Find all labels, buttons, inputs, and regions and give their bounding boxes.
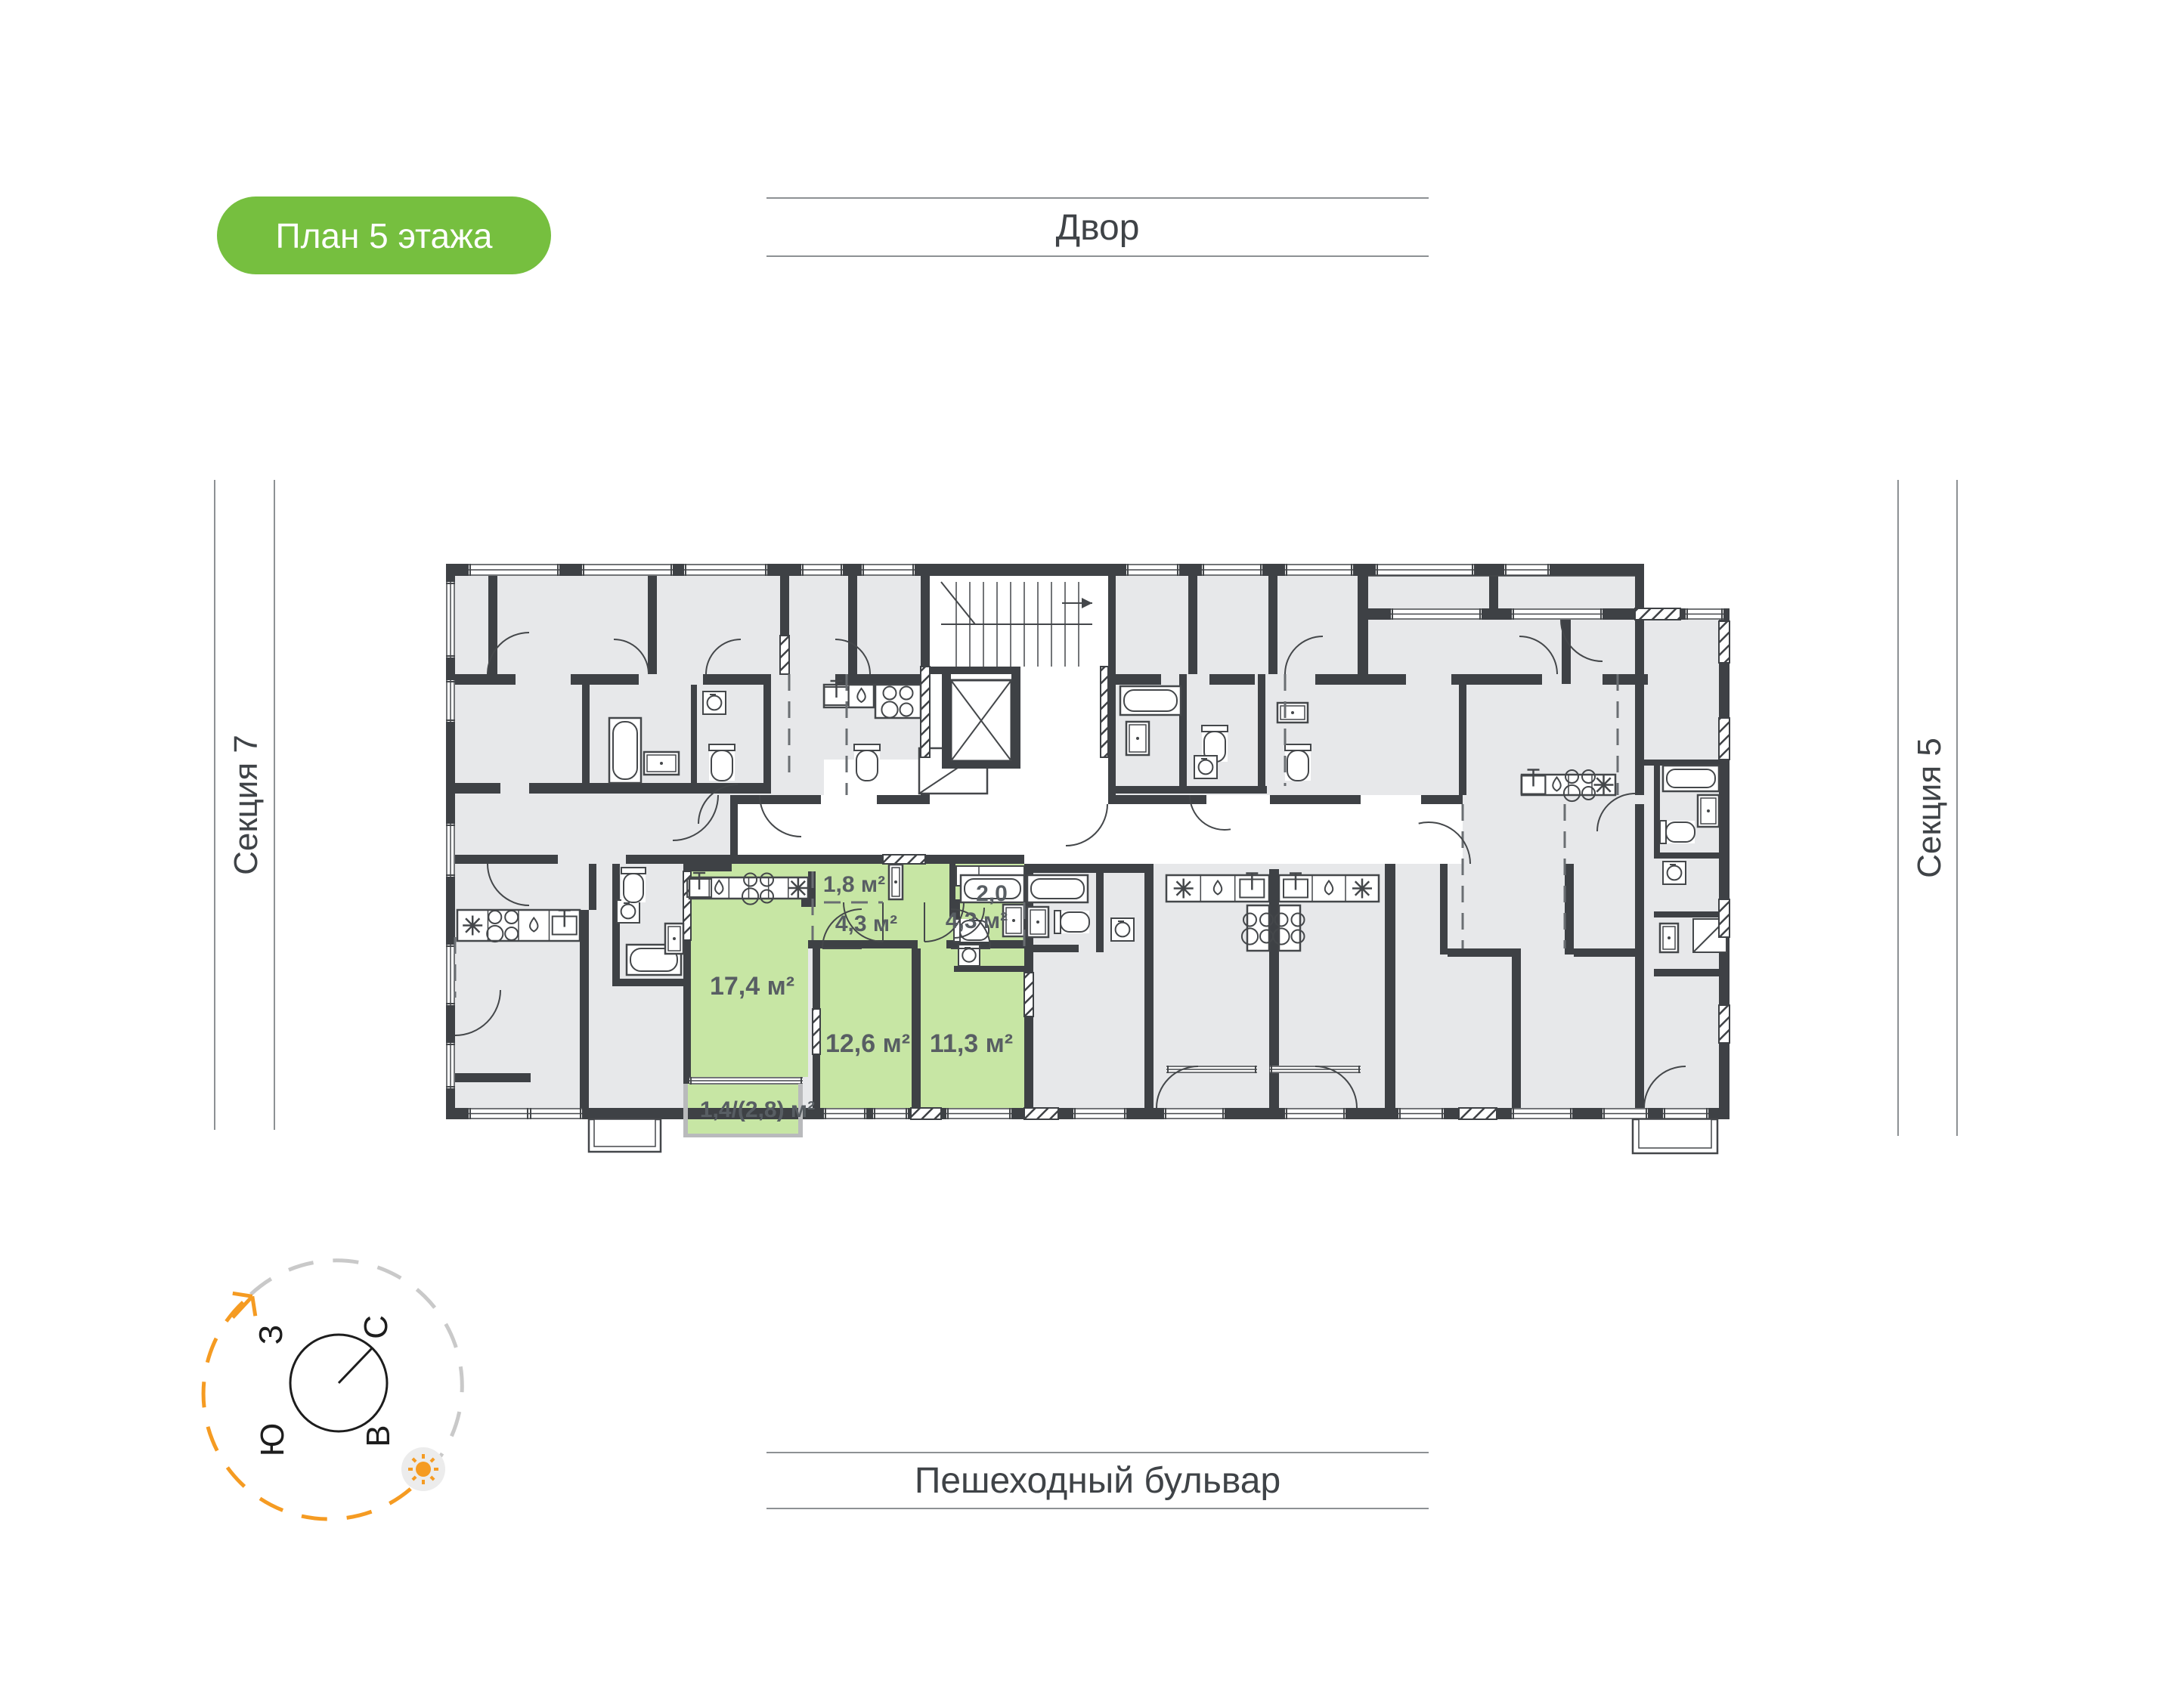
svg-text:2,0: 2,0 (976, 881, 1008, 906)
svg-text:С: С (358, 1315, 395, 1339)
svg-text:17,4 м²: 17,4 м² (710, 972, 794, 1001)
svg-text:Пешеходный бульвар: Пешеходный бульвар (915, 1461, 1280, 1501)
svg-text:Ю: Ю (254, 1423, 291, 1456)
svg-text:4,3 м²: 4,3 м² (946, 908, 1008, 933)
svg-text:11,3 м²: 11,3 м² (930, 1029, 1013, 1058)
svg-text:Секция 5: Секция 5 (1911, 738, 1948, 878)
svg-text:4,3 м²: 4,3 м² (835, 911, 897, 936)
svg-text:З: З (252, 1325, 290, 1345)
svg-text:Секция 7: Секция 7 (228, 735, 265, 875)
svg-text:1,8 м²: 1,8 м² (823, 872, 885, 897)
svg-text:1,4/(2,8) м²: 1,4/(2,8) м² (700, 1097, 815, 1122)
svg-text:В: В (360, 1425, 397, 1447)
svg-text:Двор: Двор (1056, 208, 1140, 248)
svg-text:12,6 м²: 12,6 м² (825, 1029, 910, 1058)
svg-text:План 5 этажа: План 5 этажа (276, 216, 493, 255)
